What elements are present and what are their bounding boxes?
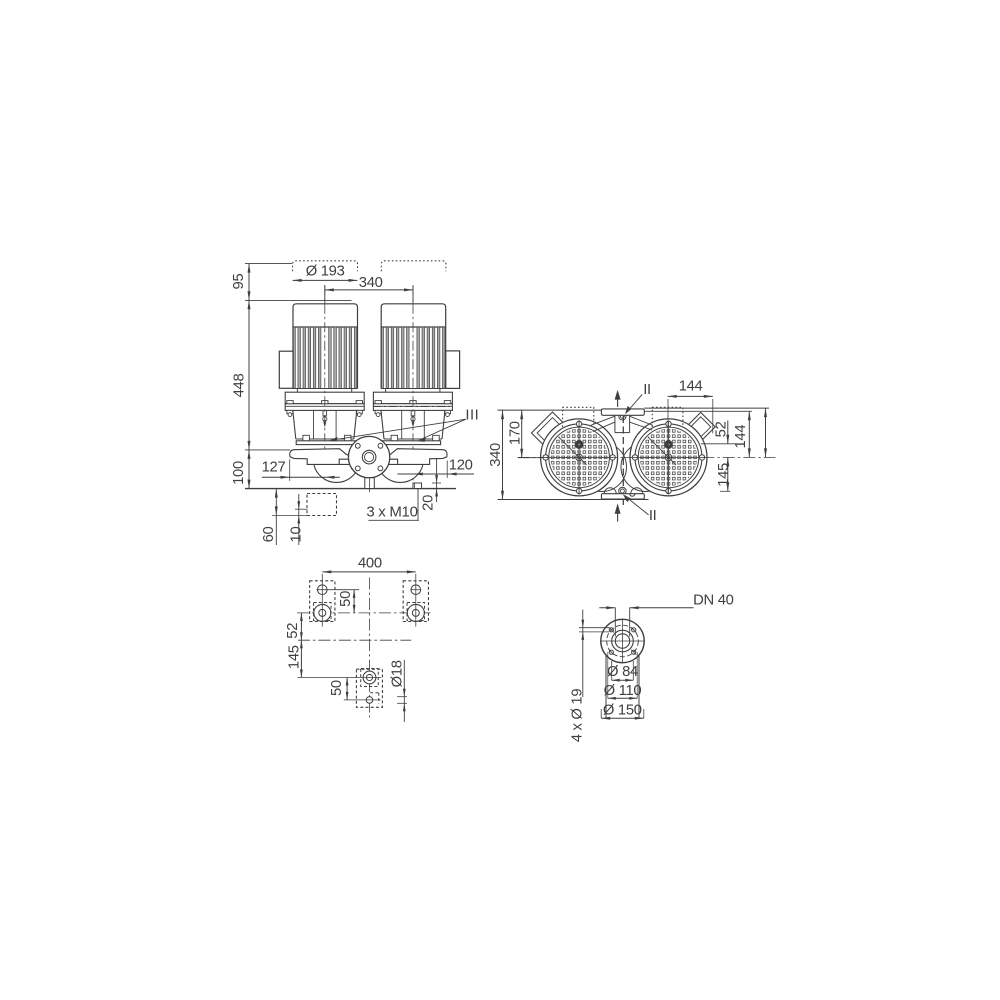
- svg-text:4 x Ø 19: 4 x Ø 19: [570, 689, 586, 743]
- svg-text:170: 170: [507, 421, 523, 445]
- svg-text:20: 20: [421, 495, 437, 511]
- svg-text:3 x M10: 3 x M10: [366, 504, 417, 521]
- svg-text:400: 400: [358, 556, 382, 572]
- svg-text:50: 50: [329, 680, 345, 696]
- svg-text:144: 144: [679, 379, 703, 395]
- svg-text:II: II: [649, 508, 657, 524]
- svg-text:Ø 193: Ø 193: [306, 264, 345, 280]
- svg-text:144: 144: [733, 425, 749, 449]
- svg-text:145: 145: [287, 645, 303, 669]
- svg-text:127: 127: [262, 460, 286, 476]
- svg-text:Ø18: Ø18: [390, 660, 406, 687]
- svg-text:III: III: [465, 407, 479, 423]
- svg-text:340: 340: [488, 443, 504, 467]
- svg-text:10: 10: [289, 527, 305, 543]
- svg-text:Ø 110: Ø 110: [604, 683, 642, 699]
- svg-text:340: 340: [359, 275, 383, 291]
- svg-text:52: 52: [285, 623, 301, 639]
- svg-text:60: 60: [261, 527, 277, 543]
- svg-text:Ø 84: Ø 84: [607, 664, 638, 680]
- svg-text:120: 120: [449, 457, 473, 473]
- svg-text:145: 145: [716, 463, 732, 487]
- svg-text:DN 40: DN 40: [693, 593, 734, 609]
- svg-text:100: 100: [231, 461, 247, 485]
- svg-text:52: 52: [713, 421, 729, 437]
- svg-text:II: II: [643, 382, 651, 398]
- svg-text:448: 448: [231, 374, 247, 398]
- svg-text:95: 95: [231, 274, 247, 290]
- svg-text:Ø 150: Ø 150: [603, 703, 642, 719]
- svg-text:50: 50: [338, 591, 354, 607]
